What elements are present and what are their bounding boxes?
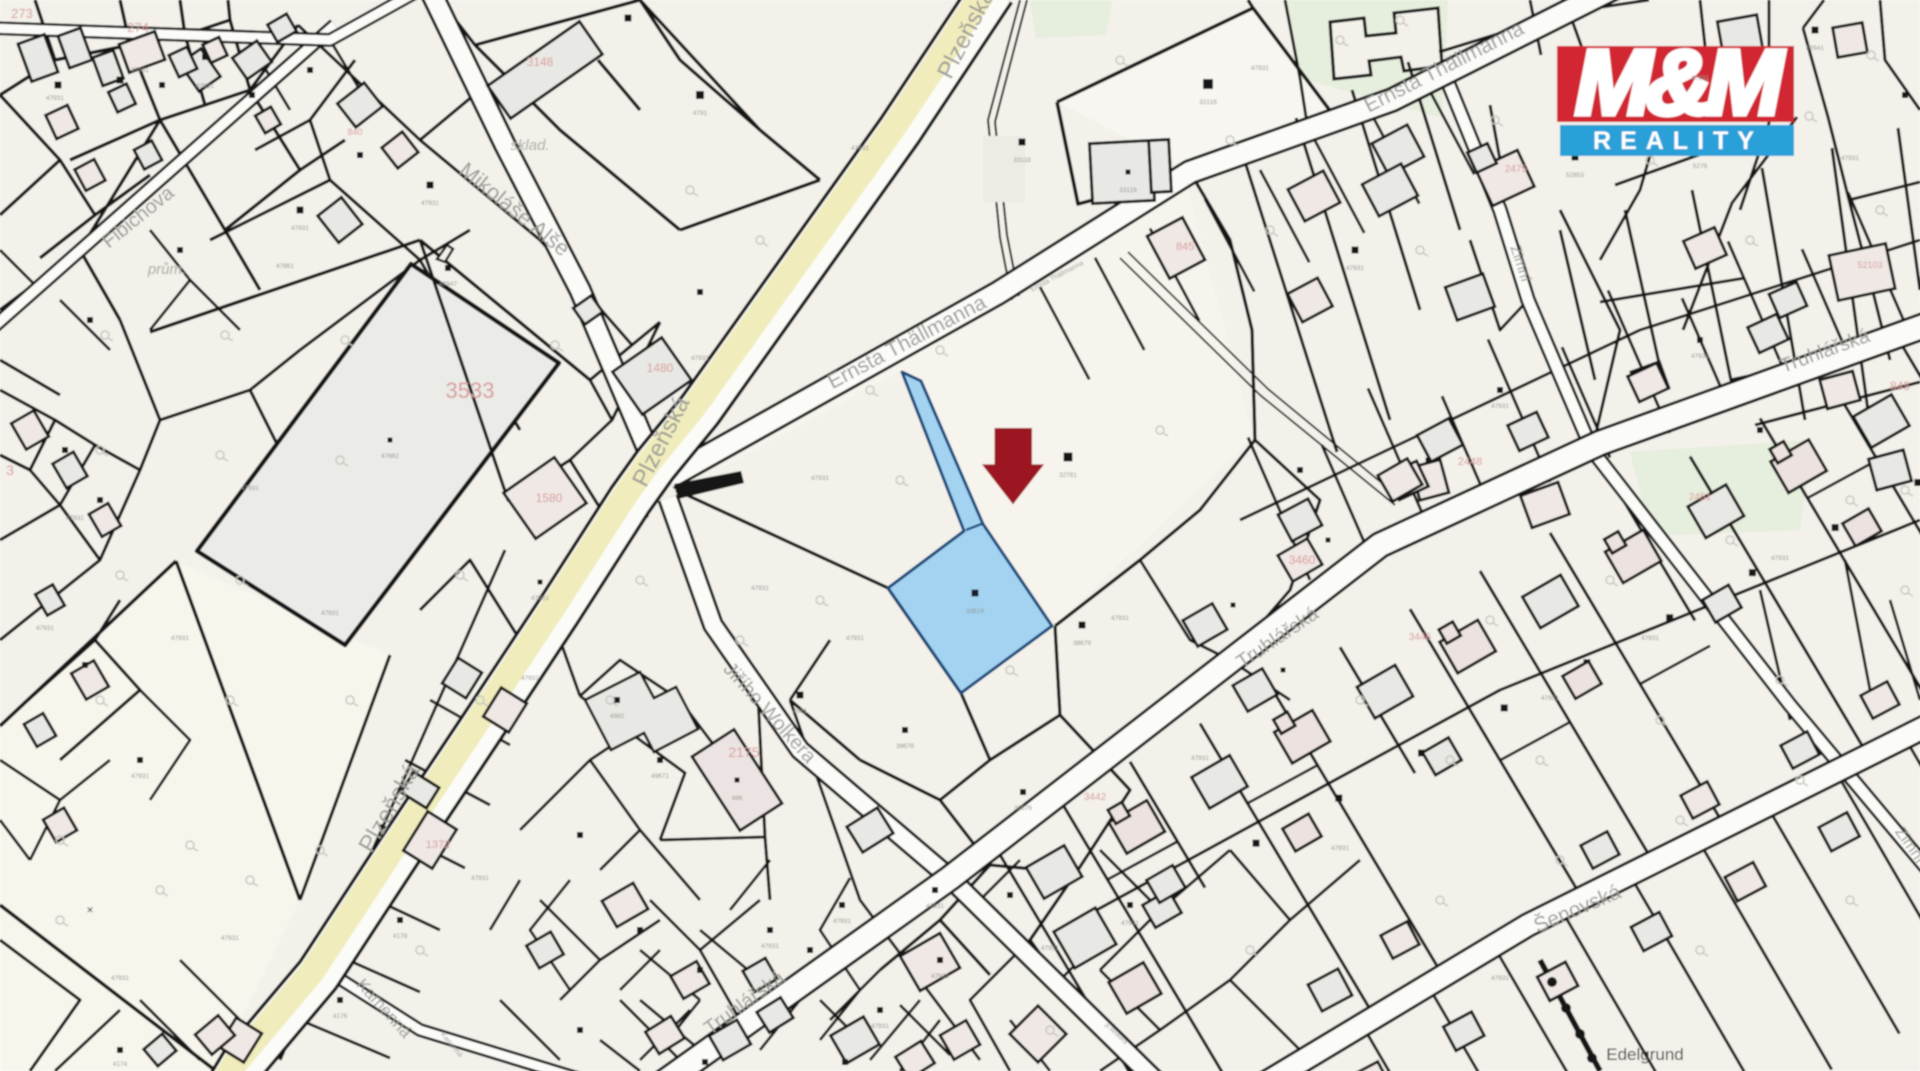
svg-text:47931: 47931	[691, 355, 709, 362]
svg-text:3442: 3442	[1084, 792, 1107, 803]
svg-text:47931: 47931	[1771, 555, 1789, 562]
svg-text:47931: 47931	[1121, 920, 1139, 927]
svg-text:49671: 49671	[651, 773, 669, 780]
svg-text:47931: 47931	[36, 625, 54, 632]
svg-text:4791: 4791	[693, 110, 708, 117]
svg-text:47931: 47931	[111, 975, 129, 982]
svg-text:52103: 52103	[1857, 260, 1882, 270]
svg-text:2175: 2175	[728, 744, 759, 760]
svg-text:47931: 47931	[871, 1023, 889, 1030]
svg-text:2475: 2475	[1505, 164, 1528, 175]
svg-text:47931: 47931	[1491, 403, 1509, 410]
svg-text:38678: 38678	[896, 743, 914, 750]
svg-text:Edelgrund: Edelgrund	[1606, 1045, 1684, 1064]
svg-text:47931: 47931	[811, 475, 829, 482]
svg-text:4178: 4178	[393, 933, 408, 940]
svg-text:47931: 47931	[1541, 695, 1559, 702]
svg-text:47931: 47931	[471, 875, 489, 882]
svg-text:47931: 47931	[1191, 755, 1209, 762]
svg-text:47931: 47931	[131, 67, 149, 74]
svg-text:3148: 3148	[527, 55, 554, 69]
svg-text:47862: 47862	[381, 453, 399, 460]
svg-text:52941: 52941	[1806, 45, 1824, 52]
svg-text:47947: 47947	[439, 281, 457, 288]
svg-text:845: 845	[1176, 241, 1194, 253]
svg-text:47931: 47931	[926, 903, 944, 910]
svg-text:47861: 47861	[276, 263, 294, 270]
svg-text:52853: 52853	[1566, 172, 1584, 179]
svg-text:47931: 47931	[131, 773, 149, 780]
svg-text:47931: 47931	[66, 515, 84, 522]
svg-text:33118: 33118	[1013, 157, 1031, 164]
svg-text:47931: 47931	[846, 635, 864, 642]
svg-text:840: 840	[347, 127, 362, 137]
svg-text:32118: 32118	[1199, 99, 1217, 106]
svg-text:47931: 47931	[1841, 155, 1859, 162]
svg-text:1480: 1480	[647, 361, 674, 375]
svg-text:47931: 47931	[321, 610, 339, 617]
svg-text:✕: ✕	[86, 905, 94, 915]
svg-text:47931: 47931	[931, 973, 949, 980]
svg-text:4982: 4982	[610, 713, 625, 720]
svg-text:2451: 2451	[1689, 492, 1712, 503]
svg-text:47931: 47931	[1691, 75, 1709, 82]
svg-text:4981: 4981	[793, 708, 808, 715]
svg-text:47931: 47931	[751, 585, 769, 592]
svg-text:274: 274	[127, 20, 149, 35]
svg-text:4176: 4176	[333, 1013, 348, 1020]
svg-text:47931: 47931	[1041, 945, 1059, 952]
svg-text:1580: 1580	[536, 491, 563, 505]
svg-text:47931: 47931	[1111, 615, 1129, 622]
svg-text:3: 3	[6, 462, 14, 478]
svg-text:47931: 47931	[46, 95, 64, 102]
svg-text:498: 498	[732, 795, 743, 802]
svg-text:47931: 47931	[521, 675, 539, 682]
svg-text:47931: 47931	[1641, 635, 1659, 642]
svg-text:47931: 47931	[851, 145, 869, 152]
svg-text:32761: 32761	[1059, 472, 1077, 479]
svg-text:47931: 47931	[421, 200, 439, 207]
svg-text:47931: 47931	[1346, 265, 1364, 272]
svg-text:2448: 2448	[1458, 456, 1482, 468]
svg-text:47931: 47931	[171, 635, 189, 642]
svg-text:1372: 1372	[426, 839, 450, 851]
svg-text:5276: 5276	[1693, 163, 1708, 170]
svg-text:47931: 47931	[833, 918, 851, 925]
svg-text:47931: 47931	[1691, 353, 1709, 360]
svg-text:47931: 47931	[1251, 65, 1269, 72]
svg-text:prům.: prům.	[147, 261, 186, 278]
svg-text:47931: 47931	[1491, 975, 1509, 982]
svg-text:273: 273	[11, 6, 33, 21]
svg-text:33619: 33619	[966, 608, 984, 615]
svg-text:47931: 47931	[761, 943, 779, 950]
svg-text:47931: 47931	[241, 485, 259, 492]
svg-text:3446: 3446	[1409, 632, 1432, 643]
svg-text:REALITY: REALITY	[1593, 127, 1763, 155]
svg-text:47961: 47961	[531, 595, 549, 602]
svg-text:47931: 47931	[196, 83, 214, 90]
svg-text:38679: 38679	[1073, 640, 1091, 647]
svg-text:845: 845	[1890, 379, 1910, 393]
svg-text:47931: 47931	[1331, 845, 1349, 852]
svg-text:38576: 38576	[1014, 805, 1032, 812]
svg-text:47931: 47931	[221, 935, 239, 942]
svg-text:3460: 3460	[1289, 553, 1316, 567]
svg-text:4174: 4174	[113, 1061, 128, 1068]
svg-text:33119: 33119	[1119, 187, 1137, 194]
svg-text:3533: 3533	[446, 378, 495, 403]
svg-text:47931: 47931	[291, 225, 309, 232]
svg-text:sklad.: sklad.	[510, 137, 549, 154]
svg-text:M&M: M&M	[1575, 32, 1785, 134]
